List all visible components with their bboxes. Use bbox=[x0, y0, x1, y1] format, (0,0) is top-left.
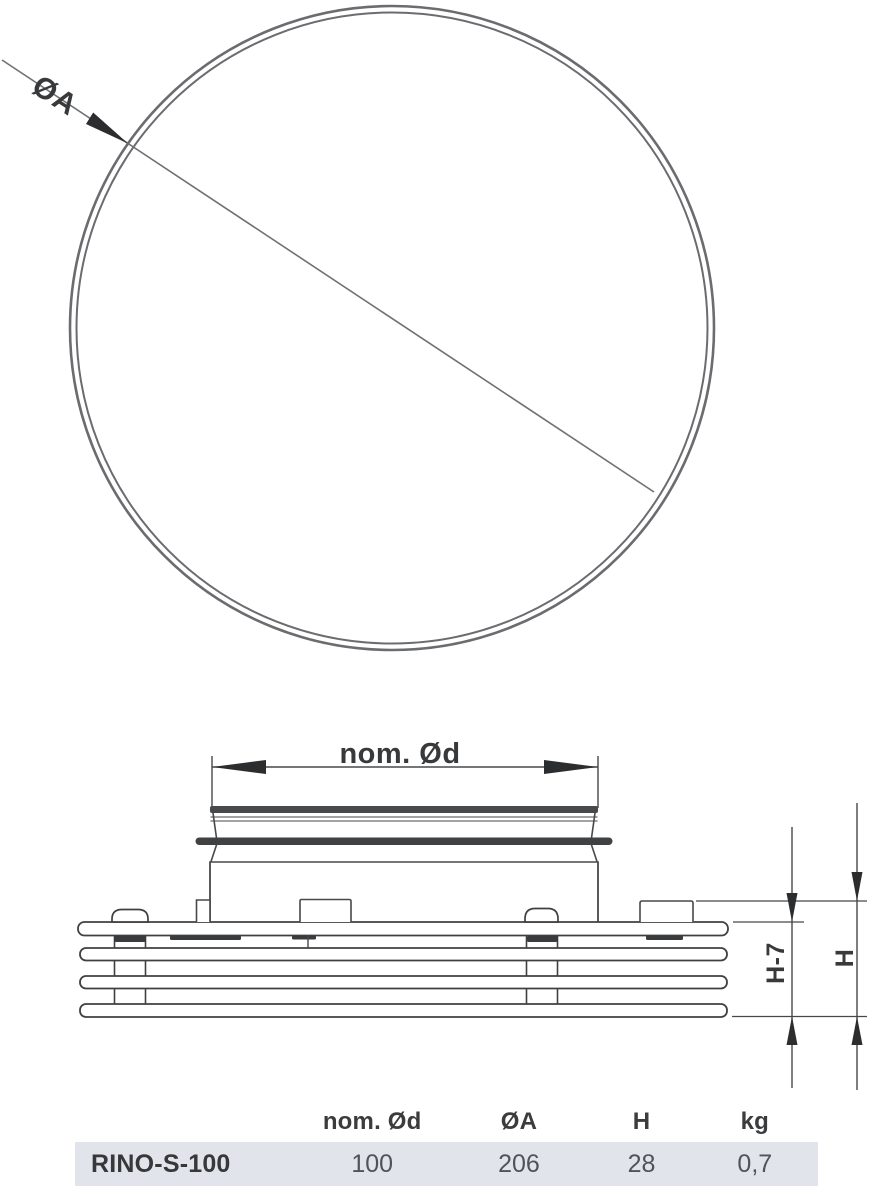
seam-mark-2 bbox=[292, 936, 316, 940]
h-arrow-top bbox=[852, 872, 863, 901]
tab-center bbox=[300, 900, 351, 923]
col-header-kg: kg bbox=[692, 1108, 818, 1136]
table-header-row: nom. Ød ØA H kg bbox=[75, 1102, 818, 1142]
tab-left bbox=[197, 900, 211, 922]
height-dimensions: H-7 H bbox=[696, 803, 867, 1090]
bolt-left-dome bbox=[112, 910, 148, 923]
diameter-label: ØA bbox=[26, 69, 83, 122]
louver-slat-1 bbox=[80, 948, 727, 961]
side-view-drawing: nom. Ød bbox=[0, 700, 875, 1100]
louver-slats bbox=[80, 948, 727, 1017]
flare-wall-left bbox=[211, 845, 217, 862]
col-header-nom-od: nom. Ød bbox=[298, 1108, 447, 1136]
inner-circle bbox=[77, 13, 708, 644]
seam-mark-3 bbox=[646, 936, 683, 941]
collar-top-rim bbox=[210, 806, 598, 813]
bolt-left-nut bbox=[114, 936, 146, 942]
plate-tabs bbox=[197, 900, 694, 923]
h7-label: H-7 bbox=[762, 942, 790, 984]
diameter-dimension: ØA bbox=[2, 60, 654, 492]
louver-slat-2 bbox=[80, 976, 727, 989]
seam-mark-1 bbox=[170, 936, 241, 941]
tab-right bbox=[640, 901, 693, 922]
diameter-arrowhead bbox=[86, 113, 128, 144]
technical-drawing-page: ØA nom. Ød bbox=[0, 0, 875, 1200]
h-arrow-bottom bbox=[852, 1017, 863, 1046]
arrowhead-right bbox=[544, 760, 598, 774]
nominal-diameter-dimension: nom. Ød bbox=[212, 738, 598, 808]
cell-model: RINO-S-100 bbox=[75, 1150, 298, 1179]
h-label: H bbox=[831, 949, 859, 968]
cell-nom-od: 100 bbox=[298, 1150, 447, 1179]
nominal-diameter-label: nom. Ød bbox=[339, 738, 460, 770]
plate-circle bbox=[70, 6, 714, 650]
col-header-oa: ØA bbox=[446, 1108, 591, 1136]
h7-arrow-top bbox=[787, 893, 798, 922]
base-plate bbox=[78, 922, 728, 936]
col-header-h: H bbox=[591, 1108, 691, 1136]
clamp-band bbox=[196, 838, 613, 846]
pipe-collar bbox=[196, 806, 613, 922]
h7-arrow-bottom bbox=[787, 1017, 798, 1046]
table-row: RINO-S-100 100 206 28 0,7 bbox=[75, 1142, 818, 1186]
bolt-right-nut bbox=[527, 936, 558, 942]
louver-slat-3 bbox=[80, 1004, 727, 1017]
cell-kg: 0,7 bbox=[692, 1150, 818, 1179]
bolt-right-dome bbox=[525, 909, 558, 923]
arrowhead-left bbox=[212, 760, 266, 774]
top-view-drawing: ØA bbox=[0, 0, 875, 660]
outer-circle bbox=[70, 6, 714, 650]
cell-oa: 206 bbox=[446, 1150, 591, 1179]
spec-table: nom. Ød ØA H kg RINO-S-100 100 206 28 0,… bbox=[75, 1102, 818, 1186]
cell-h: 28 bbox=[591, 1150, 691, 1179]
flare-wall-right bbox=[592, 845, 598, 862]
